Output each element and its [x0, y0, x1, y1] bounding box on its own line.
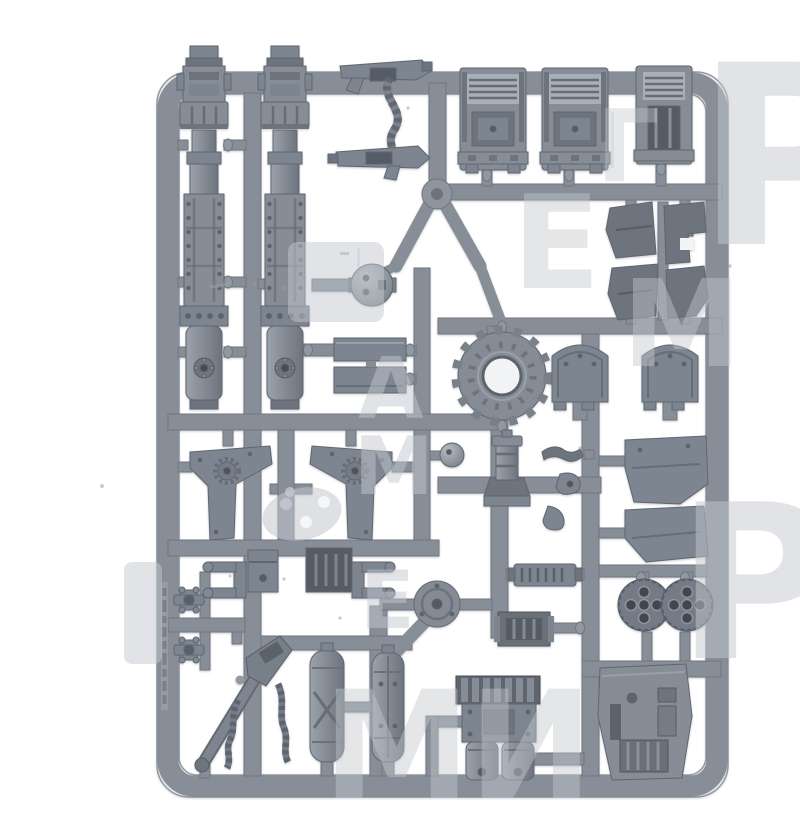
- watermark-glyph: М: [322, 660, 471, 816]
- vent-housing-1: [458, 68, 528, 173]
- watermark-glyph: Е: [512, 167, 601, 319]
- molding-mark: [161, 582, 168, 710]
- watermark-blob: [124, 562, 162, 664]
- watermark-glyph: М: [622, 256, 741, 395]
- ball-joint-small: [440, 443, 464, 467]
- product-photo: Р Р Е М А М Е М И Г: [40, 16, 800, 816]
- watermark-glyph: М: [354, 420, 434, 513]
- vent-plate: [508, 564, 582, 586]
- watermark-blob: [288, 242, 384, 322]
- cowl-panel-left: [552, 345, 608, 410]
- sprue-photo-canvas: Р Р Е М А М Е М И Г: [40, 16, 800, 816]
- watermark-glyph: И: [468, 660, 594, 816]
- turret-disc: [414, 581, 460, 627]
- mount-box: [248, 550, 278, 592]
- gearbox-block: [494, 612, 554, 646]
- grille-box: [306, 548, 352, 592]
- watermark-glyph: Г: [596, 88, 660, 205]
- watermark-glyph: Р: [676, 458, 800, 709]
- watermark-glyph: Е: [360, 554, 415, 647]
